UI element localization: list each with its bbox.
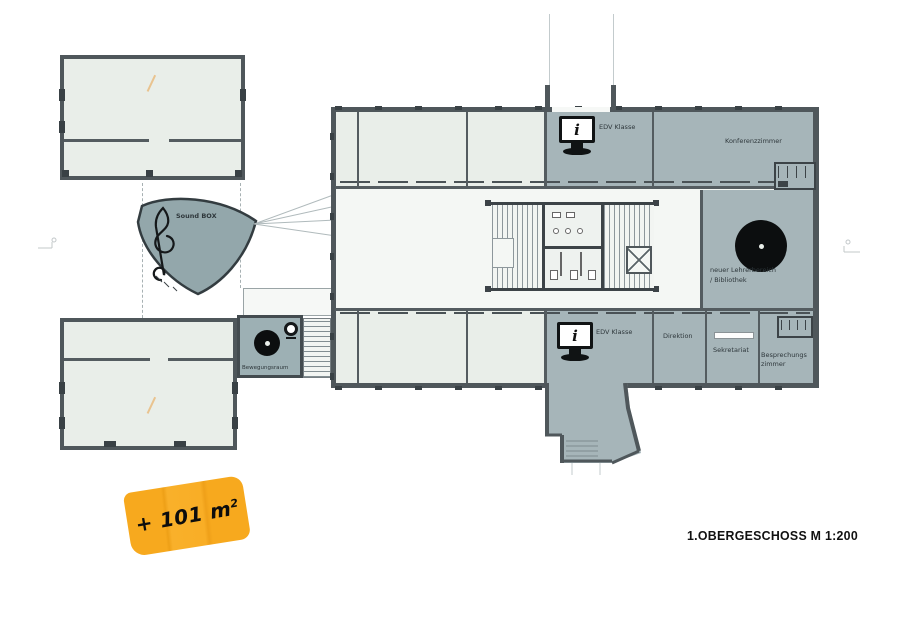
hall-wall-bottom <box>335 308 815 311</box>
room-label: Besprechungs <box>761 351 807 359</box>
wall-corner-mark <box>485 286 491 292</box>
wc-room-top-right <box>774 162 816 190</box>
computer-info-icon: i <box>556 116 598 158</box>
window-marks <box>330 115 334 380</box>
toilet-fixture <box>565 228 571 234</box>
wc-room-bottom-right <box>777 316 813 338</box>
partition <box>705 310 707 383</box>
band-top-light <box>335 112 545 188</box>
window-mark <box>232 417 238 429</box>
stub-top-rail <box>613 14 614 85</box>
room-label: / Bibliothek <box>710 276 747 284</box>
stub-top-wall <box>545 85 550 110</box>
partition <box>544 310 547 383</box>
section-marker-right <box>836 236 862 258</box>
monitor-base <box>563 148 591 155</box>
wall-corner-mark <box>62 170 69 177</box>
band-bottom-light <box>335 310 545 383</box>
partition <box>466 112 468 188</box>
window-mark <box>240 89 246 101</box>
area-badge-sup: 2 <box>229 496 239 510</box>
room-label: Sound BOX <box>176 212 217 220</box>
partition <box>652 112 654 188</box>
monitor-screen: i <box>557 322 593 349</box>
partition <box>357 112 359 188</box>
partition <box>652 310 654 383</box>
stub-top-gap <box>552 107 610 112</box>
wall-corner-mark <box>146 170 153 177</box>
partition <box>357 310 359 383</box>
glazing-sill <box>340 181 810 183</box>
desk <box>714 332 754 339</box>
outer-wall-right <box>813 107 819 388</box>
room-bewegungsraum: Bewegungsraum <box>237 315 303 378</box>
room-label: EDV Klasse <box>599 123 635 131</box>
glazing-sill <box>340 312 810 314</box>
room-label: Direktion <box>663 332 693 340</box>
wc-fixture <box>778 181 788 187</box>
sink-fixture <box>552 212 561 218</box>
webcam-icon <box>284 322 298 336</box>
window-mark <box>232 382 238 394</box>
partition <box>544 112 547 188</box>
wall-corner-mark <box>485 200 491 206</box>
wc-core <box>542 205 604 288</box>
room-label: Konferenzzimmer <box>725 137 782 145</box>
wall-corner-mark <box>235 170 242 177</box>
room-label: EDV Klasse <box>596 328 632 336</box>
monitor-screen: i <box>559 116 595 143</box>
interior-wall <box>64 139 149 142</box>
record-player-icon <box>735 220 787 272</box>
stub-bottom <box>540 383 645 475</box>
interior-wall <box>168 358 233 361</box>
window-mark <box>174 441 186 447</box>
toilet-fixture <box>553 228 559 234</box>
elevator <box>626 246 652 274</box>
stub-top-wall <box>611 85 616 110</box>
stub-top-rail <box>549 14 550 85</box>
room-label: zimmer <box>761 360 786 368</box>
sightline-fan <box>252 190 338 246</box>
stair-left-wing <box>303 318 331 378</box>
monitor-base <box>561 354 589 361</box>
computer-info-icon: i <box>554 322 596 364</box>
wing-top-left <box>60 55 245 180</box>
area-badge-text: + 101 m2 <box>133 495 241 537</box>
plan-caption: 1.OBERGESCHOSS M 1:200 <box>687 528 858 543</box>
wc-fixture <box>550 270 558 280</box>
window-mark <box>59 121 65 133</box>
stair-landing <box>492 238 514 268</box>
hall-wall-top <box>335 186 815 189</box>
section-marker-left <box>36 232 62 254</box>
wc-wall <box>545 246 601 249</box>
window-mark <box>59 382 65 394</box>
wc-fixture <box>570 270 578 280</box>
partition <box>700 190 703 310</box>
partition <box>758 310 760 383</box>
wc-wall <box>601 205 604 288</box>
wing-bottom-left <box>60 318 237 450</box>
area-badge: + 101 m2 <box>123 475 252 557</box>
core-wall-bottom <box>488 288 656 291</box>
record-player-icon <box>254 330 280 356</box>
sound-box-shape <box>128 188 268 303</box>
room-label: Bewegungsraum <box>242 364 288 372</box>
room-label: Sekretariat <box>713 346 749 354</box>
interior-wall <box>64 358 150 361</box>
wc-fixture <box>588 270 596 280</box>
stall-wall <box>580 252 582 276</box>
webcam-base <box>286 337 296 339</box>
window-mark <box>59 89 65 101</box>
partition <box>466 310 468 383</box>
stall-ticks <box>778 166 812 178</box>
room-label: neuer Lehrerbereich <box>710 266 776 274</box>
stall-wall <box>560 252 562 276</box>
window-mark <box>59 417 65 429</box>
stall-ticks <box>781 320 809 330</box>
sink-fixture <box>566 212 575 218</box>
window-mark <box>104 441 116 447</box>
toilet-fixture <box>577 228 583 234</box>
interior-wall <box>169 139 241 142</box>
floor-plan: Bewegungsraum Sound BOX <box>0 0 900 637</box>
